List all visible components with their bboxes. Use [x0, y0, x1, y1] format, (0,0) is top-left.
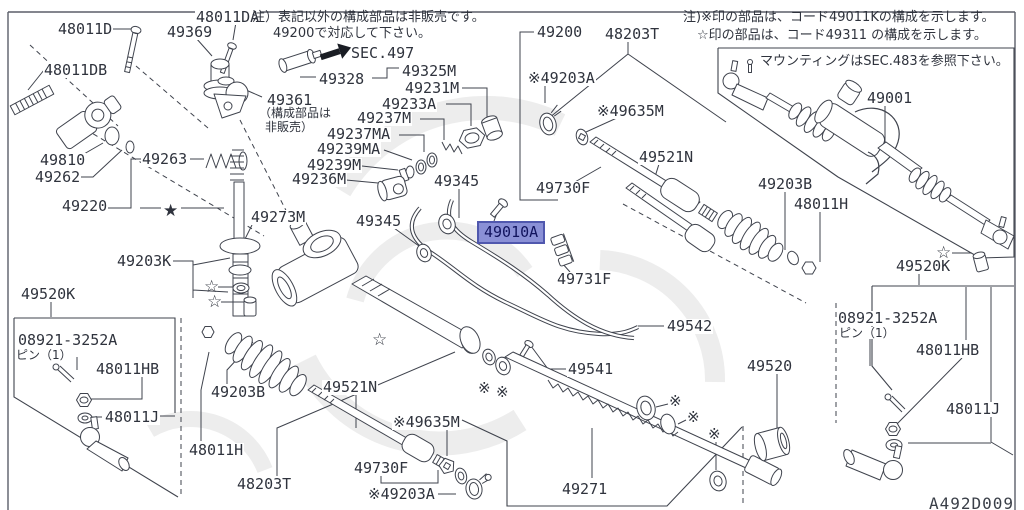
part-label-49730f[interactable]: 49730F — [353, 461, 409, 476]
part-label-49521n[interactable]: 49521N — [638, 150, 694, 165]
part-label-49262[interactable]: 49262 — [34, 170, 81, 185]
solid-star-marker: ★ — [163, 203, 178, 220]
part-label-49203k[interactable]: 49203K — [116, 254, 172, 269]
part-label-49220[interactable]: 49220 — [61, 199, 108, 214]
part-label-49263[interactable]: 49263 — [141, 152, 188, 167]
ref-marker: ※ — [687, 410, 700, 425]
part-label-49236m[interactable]: 49236M — [291, 172, 347, 187]
part-label-49200[interactable]: 49200 — [536, 25, 583, 40]
note-mounting-sec483: マウンティングはSEC.483を参照下さい。 — [760, 55, 1009, 70]
star-marker: ☆ — [936, 245, 951, 262]
part-label-49203b[interactable]: 49203B — [210, 385, 266, 400]
part-label-49203a[interactable]: ※49203A — [367, 487, 436, 502]
part-label-49271[interactable]: 49271 — [561, 482, 608, 497]
ref-marker: ※ — [708, 427, 721, 442]
part-label-48011hb[interactable]: 48011HB — [95, 362, 160, 377]
part-label-49203a[interactable]: ※49203A — [527, 71, 596, 86]
part-label-49345[interactable]: 49345 — [433, 174, 480, 189]
part-label-49542[interactable]: 49542 — [666, 319, 713, 334]
ref-marker: ※ — [478, 381, 491, 396]
part-label-48011d[interactable]: 48011D — [57, 22, 113, 37]
ref-marker: ※ — [669, 394, 682, 409]
star-marker: ☆ — [207, 294, 222, 311]
part-label-49810[interactable]: 49810 — [39, 153, 86, 168]
part-label-49635m[interactable]: ※49635M — [596, 104, 665, 119]
part-label-49239ma[interactable]: 49239MA — [316, 142, 381, 157]
part-label-48011j[interactable]: 48011J — [945, 402, 1001, 417]
part-label-089213252a[interactable]: 08921-3252A — [17, 333, 118, 348]
part-label-49635m[interactable]: ※49635M — [392, 415, 461, 430]
part-label-49731f[interactable]: 49731F — [556, 272, 612, 287]
parts-diagram-page: 注）表記以外の構成部品は非販売です。 49200で対応して下さい。 SEC.49… — [0, 0, 1024, 510]
part-label-48011h[interactable]: 48011H — [188, 443, 244, 458]
part-label-49345[interactable]: 49345 — [355, 214, 402, 229]
part-label-49325m[interactable]: 49325M — [401, 64, 457, 79]
part-label-49521n[interactable]: 49521N — [322, 380, 378, 395]
part-label-49001[interactable]: 49001 — [866, 91, 913, 106]
note-nonsale-line1: 注）表記以外の構成部品は非販売です。 — [252, 11, 485, 26]
star-marker: ☆ — [372, 332, 387, 349]
part-label-48203t[interactable]: 48203T — [604, 27, 660, 42]
part-label-49273m[interactable]: 49273M — [250, 210, 306, 225]
note-ref-49011k: 注)※印の部品は、コード49011Kの構成を示します。 — [683, 11, 995, 26]
part-label-48011db[interactable]: 48011DB — [43, 63, 108, 78]
part-label-089213252a[interactable]: 08921-3252A — [837, 311, 938, 326]
labels-layer: 注）表記以外の構成部品は非販売です。 49200で対応して下さい。 SEC.49… — [0, 0, 1024, 510]
part-label-48203t[interactable]: 48203T — [236, 477, 292, 492]
sec497-link[interactable]: SEC.497 — [351, 44, 414, 62]
part-label-49010a-selected[interactable]: 49010A — [477, 221, 545, 244]
part-label-49541[interactable]: 49541 — [567, 362, 614, 377]
part-label-49231m[interactable]: 49231M — [404, 81, 460, 96]
part-label-49730f[interactable]: 49730F — [535, 181, 591, 196]
note-ref-49311: ☆印の部品は、コード49311 の構成を示します。 — [697, 29, 987, 44]
part-label-1: ピン（1） — [838, 327, 896, 339]
ref-marker: ※ — [496, 385, 509, 400]
part-label-49520[interactable]: 49520 — [746, 359, 793, 374]
part-label-: 非販売） — [264, 121, 314, 133]
part-label-48011j[interactable]: 48011J — [104, 410, 160, 425]
part-label-49237m[interactable]: 49237M — [356, 111, 412, 126]
note-nonsale-line2: 49200で対応して下さい。 — [273, 27, 431, 42]
part-label-48011hb[interactable]: 48011HB — [915, 343, 980, 358]
part-label-49520k[interactable]: 49520K — [20, 287, 76, 302]
part-label-: （構成部品は — [258, 107, 332, 119]
part-label-1: ピン（1） — [15, 349, 73, 361]
diagram-code: A492D009 — [929, 494, 1014, 510]
part-label-49328[interactable]: 49328 — [318, 72, 365, 87]
part-label-48011h[interactable]: 48011H — [793, 197, 849, 212]
part-label-49369[interactable]: 49369 — [166, 25, 213, 40]
part-label-49203b[interactable]: 49203B — [757, 177, 813, 192]
